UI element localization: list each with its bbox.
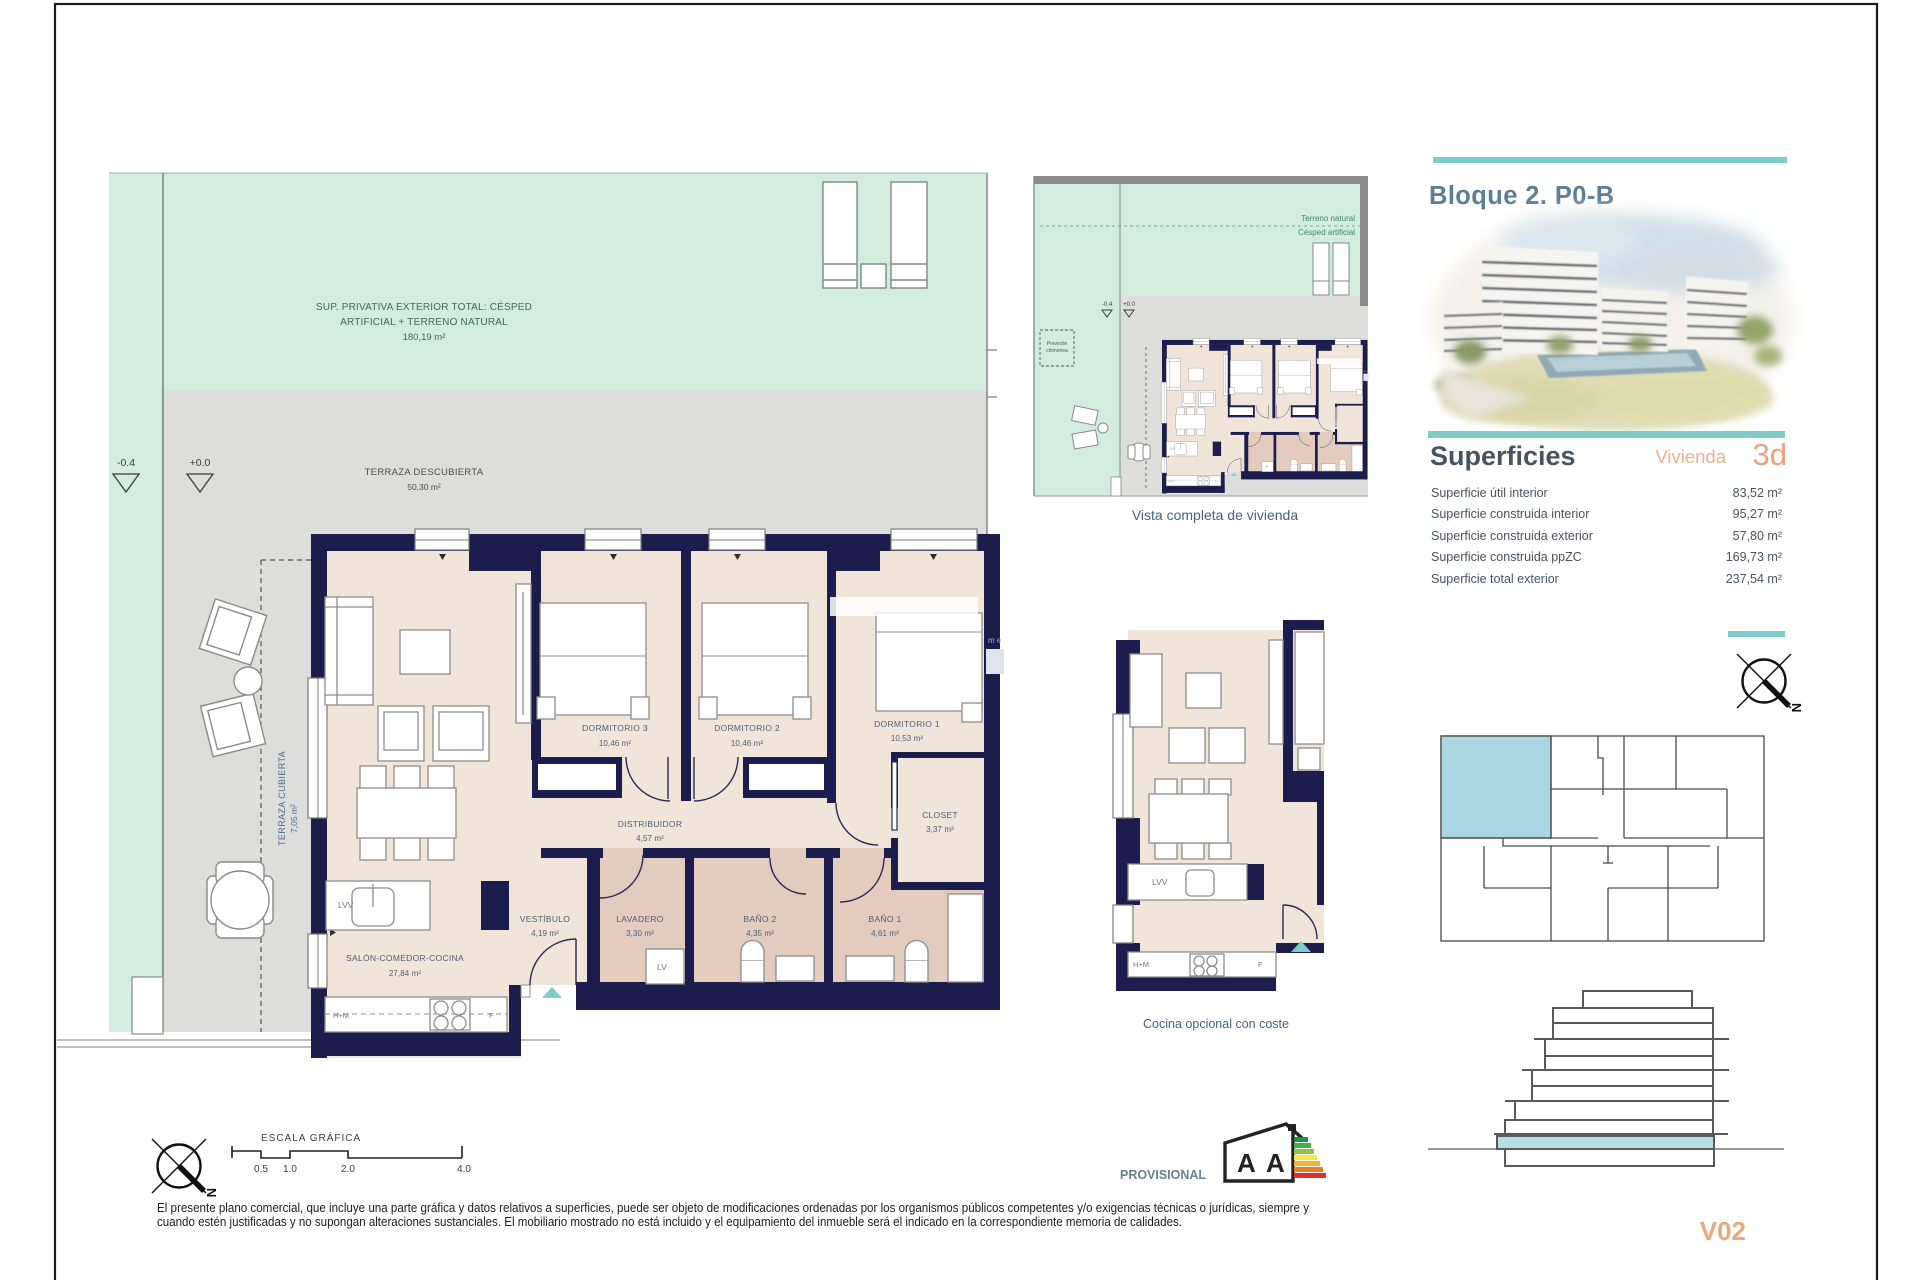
svg-text:V02: V02 bbox=[1700, 1216, 1746, 1246]
svg-text:TERRAZA CUBIERTA: TERRAZA CUBIERTA bbox=[277, 751, 287, 846]
svg-text:3,37 m²: 3,37 m² bbox=[926, 825, 954, 834]
svg-text:m e: m e bbox=[988, 636, 1002, 645]
svg-text:chimenea: chimenea bbox=[1046, 348, 1068, 354]
svg-text:El presente plano comercial, q: El presente plano comercial, que incluye… bbox=[157, 1200, 1309, 1215]
svg-text:Cocina opcional con coste: Cocina opcional con coste bbox=[1143, 1017, 1289, 1031]
svg-text:10,53 m²: 10,53 m² bbox=[891, 734, 924, 743]
svg-text:LV: LV bbox=[657, 962, 667, 972]
svg-text:A: A bbox=[1266, 1148, 1285, 1178]
svg-text:-0.4: -0.4 bbox=[1102, 302, 1113, 308]
svg-text:F: F bbox=[489, 1011, 494, 1020]
svg-text:LVV: LVV bbox=[338, 900, 354, 910]
svg-text:H+M: H+M bbox=[1133, 960, 1149, 969]
svg-text:PROVISIONAL: PROVISIONAL bbox=[1120, 1167, 1206, 1182]
svg-text:Previsión: Previsión bbox=[1047, 341, 1068, 347]
svg-text:57,80 m²: 57,80 m² bbox=[1733, 529, 1782, 543]
svg-text:F: F bbox=[1258, 960, 1263, 969]
svg-text:237,54 m²: 237,54 m² bbox=[1726, 572, 1782, 586]
svg-text:169,73 m²: 169,73 m² bbox=[1726, 550, 1782, 564]
svg-text:A: A bbox=[1237, 1148, 1256, 1178]
svg-text:4,61 m²: 4,61 m² bbox=[871, 929, 899, 938]
svg-text:4,35 m²: 4,35 m² bbox=[746, 929, 774, 938]
svg-text:cuando estén justificadas y no: cuando estén justificadas y no supongan … bbox=[157, 1214, 1182, 1229]
svg-text:-0.4: -0.4 bbox=[117, 457, 135, 469]
svg-text:DORMITORIO 1: DORMITORIO 1 bbox=[874, 719, 940, 729]
svg-text:+0.0: +0.0 bbox=[190, 457, 211, 469]
svg-text:TERRAZA DESCUBIERTA: TERRAZA DESCUBIERTA bbox=[365, 467, 484, 478]
svg-text:H+M: H+M bbox=[333, 1011, 349, 1020]
svg-text:Superficie construida interior: Superficie construida interior bbox=[1431, 507, 1589, 521]
svg-text:1.0: 1.0 bbox=[283, 1164, 297, 1175]
svg-text:Bloque 2. P0-B: Bloque 2. P0-B bbox=[1429, 182, 1615, 210]
svg-text:BAÑO 2: BAÑO 2 bbox=[744, 914, 777, 924]
svg-text:Vivienda: Vivienda bbox=[1655, 446, 1726, 467]
svg-text:SALÓN-COMEDOR-COCINA: SALÓN-COMEDOR-COCINA bbox=[346, 953, 464, 963]
svg-text:10,46 m²: 10,46 m² bbox=[599, 739, 632, 748]
svg-text:LAVADERO: LAVADERO bbox=[616, 914, 664, 924]
svg-text:DORMITORIO 2: DORMITORIO 2 bbox=[714, 723, 780, 733]
svg-text:83,52 m²: 83,52 m² bbox=[1733, 486, 1782, 500]
svg-text:Césped artificial: Césped artificial bbox=[1298, 228, 1355, 237]
svg-text:SUP. PRIVATIVA EXTERIOR TOTAL:: SUP. PRIVATIVA EXTERIOR TOTAL: CÉSPED bbox=[316, 300, 532, 313]
svg-text:4,19 m²: 4,19 m² bbox=[531, 929, 559, 938]
svg-text:7,05 m²: 7,05 m² bbox=[289, 804, 299, 833]
svg-text:27,84 m²: 27,84 m² bbox=[389, 969, 422, 978]
svg-text:+0.0: +0.0 bbox=[1123, 302, 1136, 308]
svg-text:DORMITORIO 3: DORMITORIO 3 bbox=[582, 723, 648, 733]
svg-text:LVV: LVV bbox=[1152, 877, 1168, 887]
svg-text:VESTÍBULO: VESTÍBULO bbox=[520, 914, 570, 924]
svg-text:ARTIFICIAL + TERRENO NATURAL: ARTIFICIAL + TERRENO NATURAL bbox=[340, 317, 508, 328]
svg-text:180,19 m²: 180,19 m² bbox=[403, 332, 446, 343]
svg-text:BAÑO 1: BAÑO 1 bbox=[869, 914, 902, 924]
svg-text:2.0: 2.0 bbox=[341, 1164, 355, 1175]
svg-text:3d: 3d bbox=[1753, 437, 1787, 472]
svg-text:Terreno natural: Terreno natural bbox=[1301, 214, 1355, 223]
svg-text:Vista completa de vivienda: Vista completa de vivienda bbox=[1132, 507, 1298, 523]
svg-text:4,57 m²: 4,57 m² bbox=[636, 834, 664, 843]
svg-text:50,30 m²: 50,30 m² bbox=[407, 482, 441, 492]
svg-text:N: N bbox=[1789, 703, 1804, 712]
svg-text:DISTRIBUIDOR: DISTRIBUIDOR bbox=[618, 819, 683, 829]
svg-text:4.0: 4.0 bbox=[457, 1164, 471, 1175]
svg-text:N: N bbox=[204, 1188, 219, 1197]
svg-text:Superficie total exterior: Superficie total exterior bbox=[1431, 572, 1559, 586]
svg-text:95,27 m²: 95,27 m² bbox=[1733, 507, 1782, 521]
svg-text:Superficie construida ppZC: Superficie construida ppZC bbox=[1431, 550, 1582, 564]
svg-text:CLOSET: CLOSET bbox=[922, 810, 958, 820]
svg-text:3,30 m²: 3,30 m² bbox=[626, 929, 654, 938]
svg-text:Superficie útil interior: Superficie útil interior bbox=[1431, 486, 1548, 500]
svg-text:Superficies: Superficies bbox=[1430, 441, 1576, 471]
svg-text:Superficie construida exterior: Superficie construida exterior bbox=[1431, 529, 1593, 543]
svg-text:0.5: 0.5 bbox=[254, 1164, 268, 1175]
svg-text:10,46 m²: 10,46 m² bbox=[731, 739, 764, 748]
svg-text:ESCALA GRÁFICA: ESCALA GRÁFICA bbox=[261, 1131, 361, 1144]
